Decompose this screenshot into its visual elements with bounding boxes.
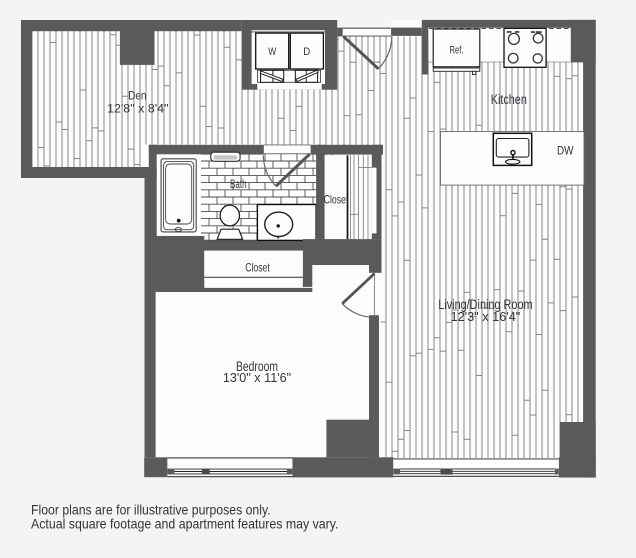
svg-text:Closet: Closet	[324, 192, 349, 206]
svg-text:DW: DW	[557, 143, 574, 157]
svg-text:Closet: Closet	[245, 261, 270, 275]
svg-text:D: D	[303, 46, 310, 58]
svg-text:13'0" x 11'6": 13'0" x 11'6"	[223, 370, 292, 385]
svg-text:12'8" x 8'4": 12'8" x 8'4"	[107, 102, 169, 116]
svg-text:Ref.: Ref.	[450, 44, 464, 56]
svg-text:Actual square footage and apar: Actual square footage and apartment feat…	[31, 516, 339, 532]
svg-text:W: W	[268, 46, 276, 58]
svg-text:Bath: Bath	[230, 179, 247, 191]
svg-text:Den: Den	[128, 89, 146, 103]
svg-text:12'3" x 16'4": 12'3" x 16'4"	[451, 309, 521, 324]
svg-text:Kitchen: Kitchen	[491, 92, 527, 107]
